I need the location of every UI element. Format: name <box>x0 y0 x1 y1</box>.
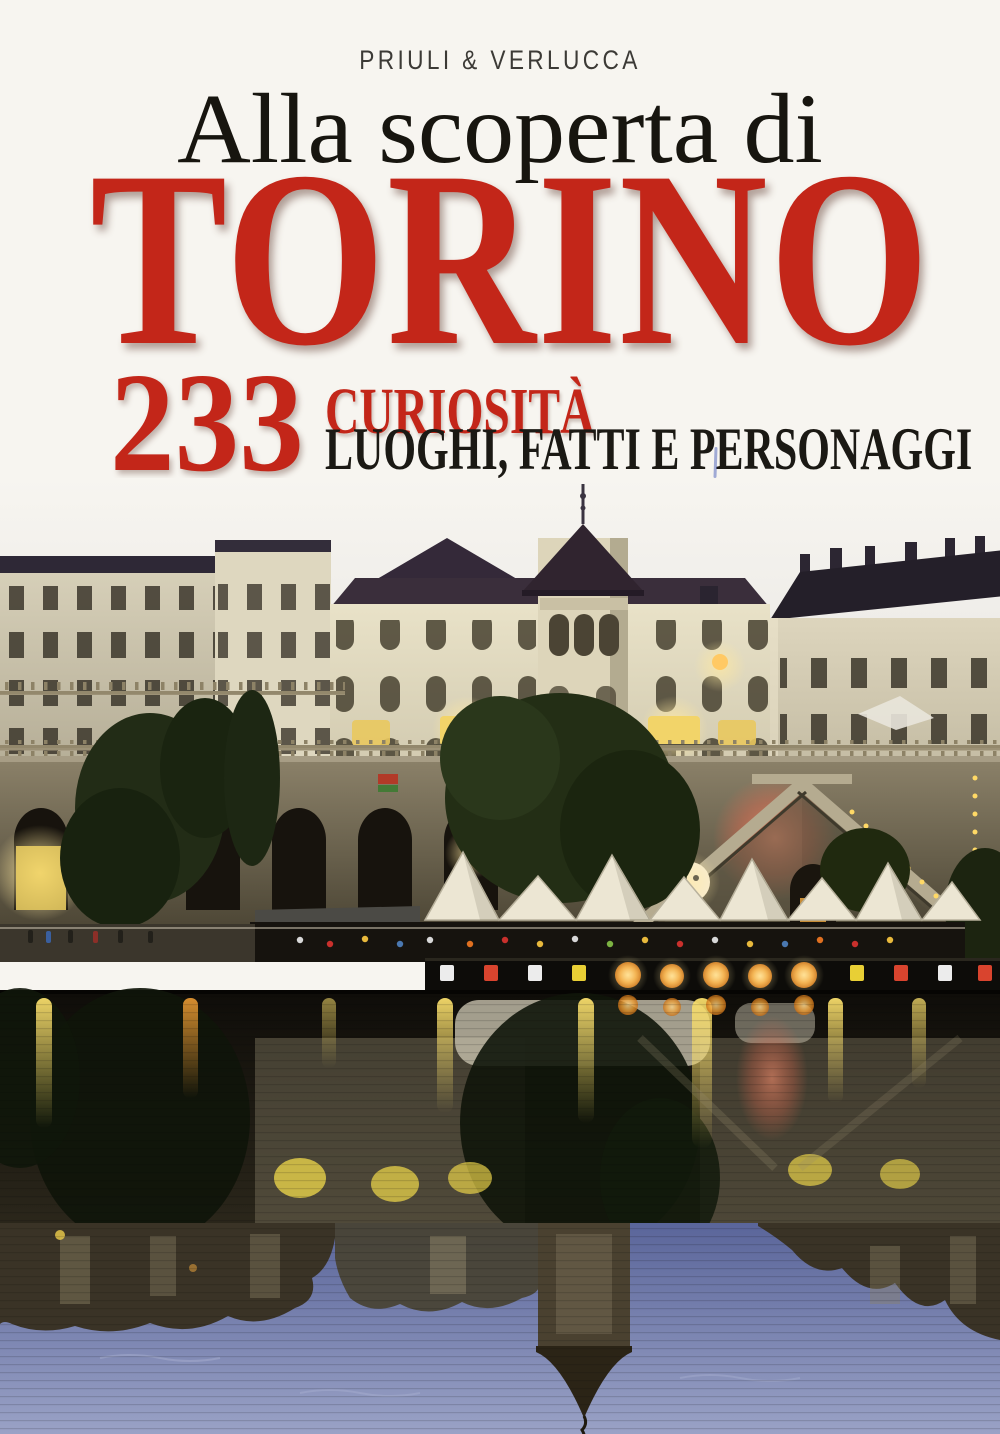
publisher-name: PRIULI & VERLUCCA <box>80 45 920 76</box>
curiosity-count: 233 <box>110 351 304 493</box>
subtitle-line-2: LUOGHI, FATTI E PERSONAGGI <box>325 419 972 479</box>
round-lanterns <box>608 955 824 995</box>
book-cover: PRIULI & VERLUCCA Alla scoperta di TORIN… <box>0 0 1000 1434</box>
photo-pontoon-lights <box>425 955 1000 995</box>
water-ripple-texture <box>0 994 1000 1434</box>
cover-photo <box>0 478 1000 1434</box>
